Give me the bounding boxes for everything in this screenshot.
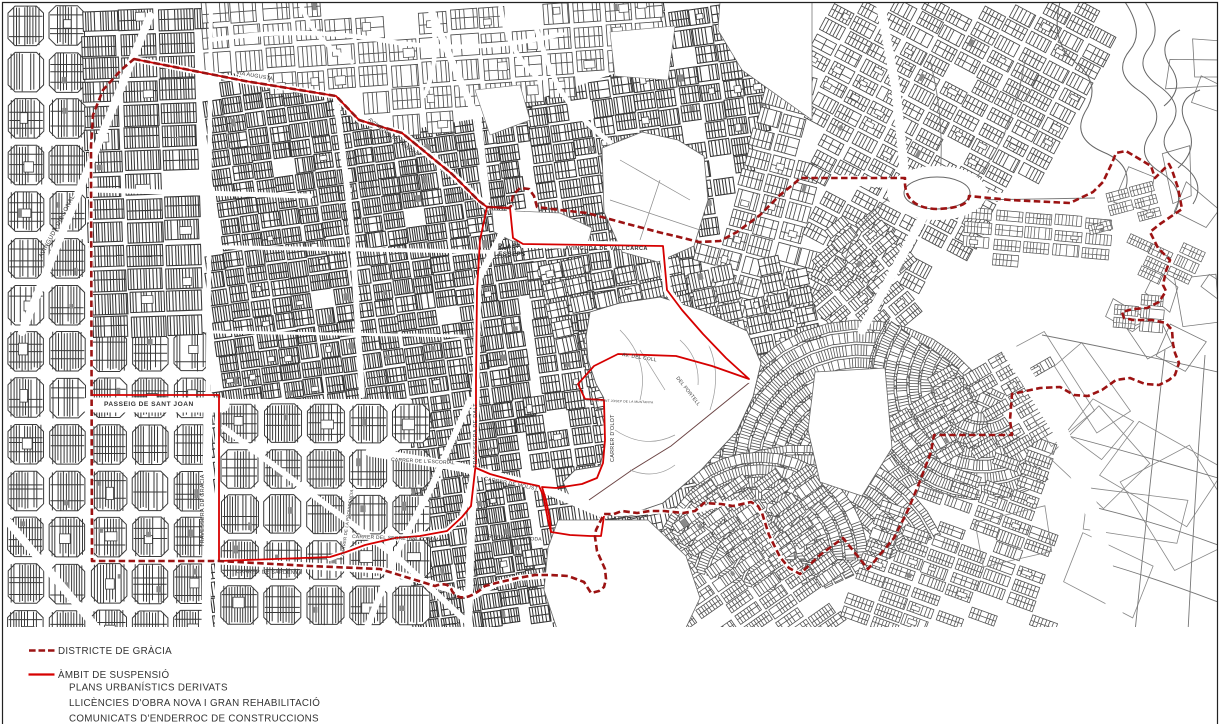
svg-text:LESSEPS: LESSEPS bbox=[494, 251, 526, 258]
svg-text:PLAÇA: PLAÇA bbox=[498, 243, 522, 250]
svg-text:ÀMBIT DE SUSPENSIÓ: ÀMBIT DE SUSPENSIÓ bbox=[58, 670, 169, 681]
svg-text:CARRER D'OLOT: CARRER D'OLOT bbox=[610, 414, 616, 462]
svg-text:AVINGUDA DE VALLCARCA: AVINGUDA DE VALLCARCA bbox=[565, 246, 648, 252]
svg-text:COMUNICATS D'ENDERROC DE CONST: COMUNICATS D'ENDERROC DE CONSTRUCCIONS bbox=[69, 714, 319, 724]
svg-text:LLICÈNCIES D'OBRA NOVA I GRAN: LLICÈNCIES D'OBRA NOVA I GRAN REHABILITA… bbox=[69, 698, 320, 709]
svg-text:PLANS URBANÍSTICS DERIVATS: PLANS URBANÍSTICS DERIVATS bbox=[69, 683, 228, 694]
svg-text:PASSEIG DE SANT JOAN: PASSEIG DE SANT JOAN bbox=[104, 401, 194, 408]
svg-text:DISTRICTE DE GRÀCIA: DISTRICTE DE GRÀCIA bbox=[58, 646, 172, 657]
svg-text:TRAVESSERA DE DALT: TRAVESSERA DE DALT bbox=[473, 403, 479, 468]
svg-text:TRAVESSERA DE GRACIA: TRAVESSERA DE GRACIA bbox=[200, 474, 206, 547]
svg-text:CARRER DE SARDENYA: CARRER DE SARDENYA bbox=[236, 569, 302, 576]
